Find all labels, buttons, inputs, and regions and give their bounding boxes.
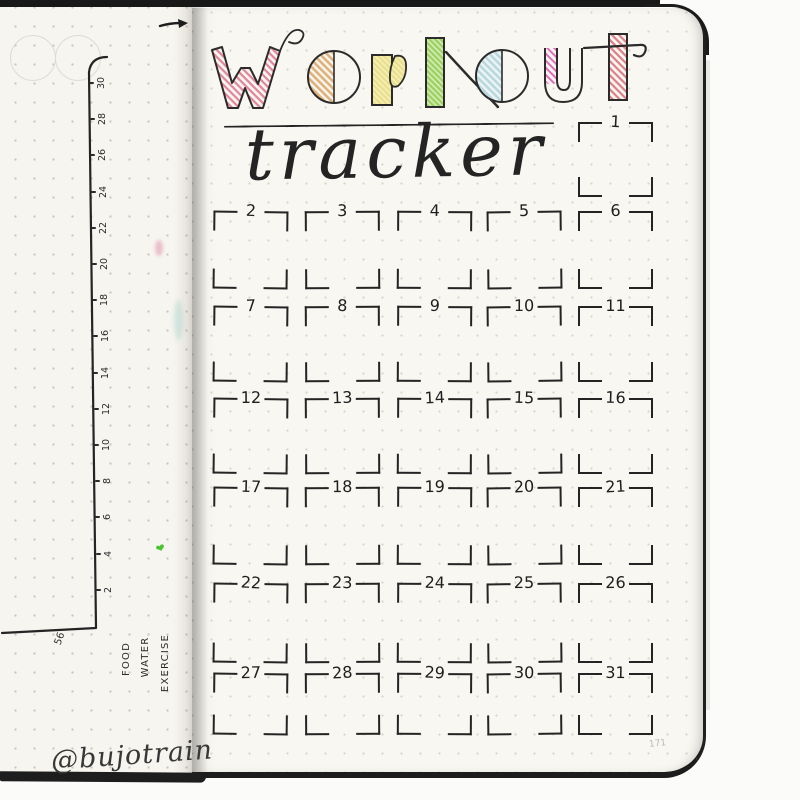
corner-bracket (264, 545, 288, 565)
subtitle-tracker: tracker (211, 101, 581, 203)
corner-bracket (213, 643, 237, 663)
day-number: 10 (486, 296, 561, 316)
axis-tick (96, 589, 101, 591)
axis-tick-label: 16 (100, 327, 112, 345)
corner-bracket (397, 643, 421, 663)
corner-bracket (448, 454, 472, 474)
axis-tick-label: 20 (99, 255, 111, 273)
day-number: 26 (578, 572, 653, 593)
corner-bracket (578, 545, 602, 565)
corner-bracket (305, 269, 329, 289)
corner-bracket (397, 362, 421, 382)
day-box-16: 16 (578, 398, 653, 474)
corner-bracket (538, 545, 562, 565)
day-box-27: 27 (213, 673, 289, 736)
day-box-2: 2 (213, 211, 289, 290)
corner-bracket (397, 545, 421, 565)
day-box-9: 9 (397, 306, 472, 382)
notebook-photo: 30282624222018161412108642 FOOD WATER EX… (0, 0, 800, 800)
day-box-4: 4 (397, 211, 472, 289)
axis-tick-label: 8 (102, 472, 114, 490)
ink-smudge-pink (155, 240, 163, 256)
day-number: 2 (213, 199, 289, 223)
axis-tick-label: 26 (97, 146, 109, 164)
title-letter-u (545, 48, 582, 102)
day-box-30: 30 (487, 673, 563, 736)
day-number: 31 (578, 662, 653, 683)
corner-bracket (629, 454, 653, 474)
day-number: 15 (486, 387, 562, 410)
day-box-14: 14 (397, 398, 472, 474)
day-box-12: 12 (213, 398, 289, 475)
day-number: 16 (578, 387, 654, 410)
axis-tick (90, 118, 95, 120)
axis-tick (95, 480, 100, 482)
day-box-5: 5 (487, 211, 563, 290)
corner-bracket (264, 643, 288, 663)
corner-bracket (305, 454, 329, 474)
day-number: 23 (304, 572, 380, 594)
day-number: 7 (213, 295, 289, 318)
corner-bracket (356, 643, 380, 663)
axis-tick-label: 2 (103, 581, 115, 599)
day-box-6: 6 (578, 211, 653, 289)
axis-tick-label: 24 (98, 183, 110, 201)
corner-bracket (538, 715, 562, 735)
corner-bracket (213, 545, 237, 565)
title-letter-t (584, 34, 646, 100)
corner-bracket (448, 269, 472, 289)
corner-bracket (264, 454, 288, 474)
day-number: 30 (486, 662, 561, 684)
axis-tick (94, 444, 99, 446)
axis-tick-label: 22 (98, 219, 110, 237)
day-box-19: 19 (397, 487, 472, 565)
corner-bracket (264, 362, 288, 382)
corner-bracket (487, 545, 511, 565)
corner-bracket (356, 454, 380, 474)
corner-bracket (448, 362, 472, 382)
axis-tick (91, 191, 96, 193)
day-box-1: 1 (578, 122, 653, 197)
corner-bracket (213, 715, 237, 735)
day-number: 9 (397, 294, 473, 317)
axis-tick (96, 553, 101, 555)
corner-bracket (356, 545, 380, 565)
corner-bracket (578, 362, 602, 382)
corner-bracket (448, 545, 472, 565)
axis-tick-label: 28 (97, 110, 109, 128)
corner-bracket (578, 715, 602, 735)
axis-tick-label: 14 (100, 364, 112, 382)
title-workout-art (205, 26, 655, 114)
day-box-23: 23 (305, 583, 380, 663)
axis-tick (91, 227, 96, 229)
axis-tick (93, 372, 98, 374)
corner-bracket (356, 269, 380, 289)
day-number: 20 (486, 475, 562, 499)
day-number: 24 (397, 572, 472, 594)
title-letter-o2 (476, 50, 528, 102)
day-number: 4 (397, 201, 472, 221)
day-box-26: 26 (578, 583, 653, 663)
corner-bracket (578, 454, 602, 474)
corner-bracket (538, 362, 562, 382)
day-number: 27 (213, 662, 288, 684)
title-letter-w (212, 30, 303, 108)
day-number: 13 (304, 386, 380, 409)
day-number: 11 (578, 296, 653, 316)
day-number: 29 (397, 661, 473, 685)
day-number: 6 (578, 200, 654, 223)
day-box-31: 31 (578, 673, 653, 735)
corner-bracket (578, 177, 602, 197)
day-number: 8 (304, 294, 380, 317)
axis-tick-label: 6 (102, 508, 114, 526)
corner-bracket (356, 715, 380, 735)
corner-bracket (305, 643, 329, 663)
day-box-3: 3 (305, 211, 380, 289)
corner-bracket (629, 362, 653, 382)
axis-tick-label: 18 (99, 291, 111, 309)
corner-bracket (397, 454, 421, 474)
axis-tick (92, 263, 97, 265)
day-number: 14 (397, 386, 473, 409)
axis-tick (89, 82, 94, 84)
corner-bracket (213, 269, 237, 289)
corner-bracket (448, 643, 472, 663)
day-box-7: 7 (213, 306, 289, 383)
day-box-20: 20 (487, 487, 563, 566)
day-box-8: 8 (305, 306, 380, 382)
corner-bracket (629, 545, 653, 565)
day-box-25: 25 (487, 583, 563, 664)
corner-bracket (305, 362, 329, 382)
notebook-corner-edge (645, 4, 709, 55)
corner-bracket (264, 269, 288, 289)
corner-bracket (356, 362, 380, 382)
corner-bracket (629, 715, 653, 735)
day-number: 1 (578, 110, 654, 134)
right-page-number: 171 (649, 738, 667, 750)
day-number: 12 (213, 388, 288, 408)
day-box-29: 29 (397, 673, 472, 735)
title-letter-r (372, 55, 406, 105)
page-stack-edge (706, 60, 710, 710)
day-box-11: 11 (578, 306, 653, 382)
day-box-21: 21 (578, 487, 653, 565)
day-box-10: 10 (487, 306, 563, 383)
corner-bracket (538, 269, 562, 289)
corner-bracket (487, 454, 511, 474)
corner-bracket (578, 269, 602, 289)
corner-bracket (538, 643, 562, 663)
day-box-15: 15 (487, 398, 563, 475)
day-box-18: 18 (305, 487, 380, 565)
category-label-water: WATER (140, 634, 152, 680)
day-number: 19 (397, 477, 472, 498)
corner-bracket (305, 715, 329, 735)
corner-bracket (397, 715, 421, 735)
corner-bracket (264, 715, 288, 735)
day-number: 18 (305, 477, 380, 497)
axis-tick-label: 12 (101, 400, 113, 418)
day-box-13: 13 (305, 398, 380, 474)
corner-bracket (213, 454, 237, 474)
day-number: 5 (486, 200, 562, 222)
day-box-22: 22 (213, 583, 289, 664)
axis-tick-label: 30 (96, 74, 108, 92)
corner-bracket (629, 643, 653, 663)
day-box-17: 17 (213, 487, 289, 566)
title-letter-o1 (308, 51, 360, 103)
day-number: 3 (305, 201, 380, 222)
notebook-top-edge (0, 0, 660, 7)
day-number: 21 (578, 475, 654, 499)
corner-bracket (487, 643, 511, 663)
corner-bracket (578, 643, 602, 663)
corner-bracket (487, 269, 511, 289)
day-number: 17 (213, 476, 289, 498)
corner-bracket (448, 715, 472, 735)
axis-tick-label: 4 (103, 545, 115, 563)
category-label-food: FOOD (121, 642, 133, 676)
day-number: 25 (486, 573, 561, 594)
corner-bracket (397, 269, 421, 289)
corner-bracket (213, 362, 237, 382)
category-label-exercise: EXERCISE (160, 633, 172, 693)
day-box-28: 28 (305, 673, 380, 735)
corner-bracket (305, 545, 329, 565)
corner-bracket (487, 715, 511, 735)
day-box-24: 24 (397, 583, 472, 663)
axis-tick-label: 10 (101, 436, 113, 454)
axis-tick (94, 408, 99, 410)
ink-smudge-teal (174, 300, 183, 340)
corner-bracket (538, 454, 562, 474)
corner-bracket (629, 177, 653, 197)
corner-bracket (629, 269, 653, 289)
corner-bracket (487, 362, 511, 382)
